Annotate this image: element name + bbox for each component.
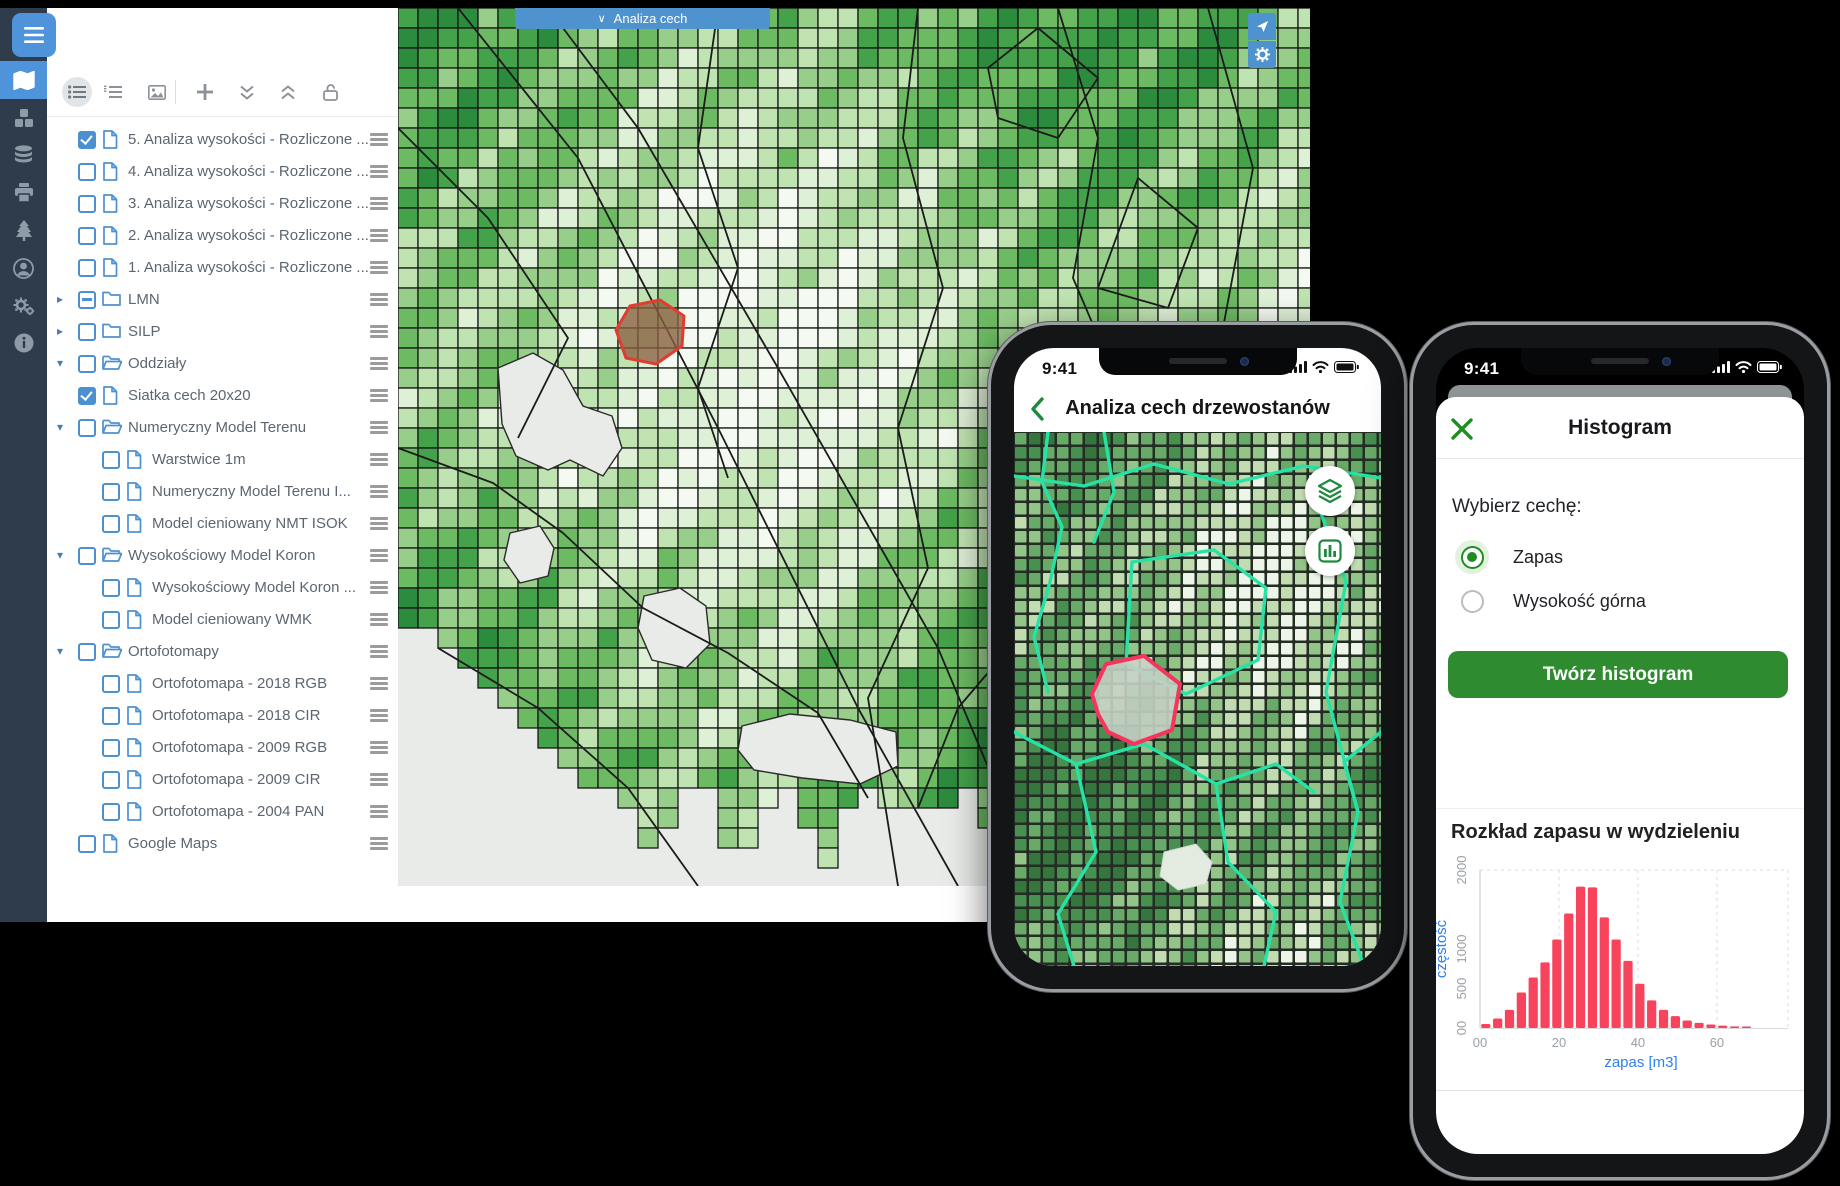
camera-dot [1240, 357, 1249, 366]
layer-row[interactable]: 4. Analiza wysokości - Rozliczone ... [47, 156, 398, 188]
chart-icon [1318, 539, 1342, 563]
layer-checkbox[interactable] [78, 163, 96, 181]
layer-label[interactable]: Numeryczny Model Terenu I... [152, 483, 351, 500]
forest-icon[interactable] [0, 211, 47, 249]
layer-label[interactable]: 5. Analiza wysokości - Rozliczone ... [128, 131, 369, 148]
folder-closed-icon [102, 322, 121, 343]
collapse-arrow-icon[interactable]: ▾ [53, 548, 67, 562]
layer-label[interactable]: 1. Analiza wysokości - Rozliczone ... [128, 259, 369, 276]
layer-label[interactable]: Warstwice 1m [152, 451, 246, 468]
file-icon [126, 802, 142, 826]
layer-row[interactable]: Warstwice 1m [47, 444, 398, 476]
layer-row[interactable]: Numeryczny Model Terenu I... [47, 476, 398, 508]
layer-checkbox[interactable] [78, 547, 96, 565]
svg-text:20: 20 [1552, 1035, 1566, 1050]
file-icon [126, 674, 142, 698]
info-icon[interactable] [0, 324, 47, 362]
divider [1436, 458, 1804, 459]
database-icon[interactable] [0, 136, 47, 174]
layer-options-icon[interactable] [370, 133, 388, 147]
layer-checkbox[interactable] [102, 611, 120, 629]
chevron-down-icon: ∨ [598, 12, 606, 25]
map-feature-dropdown[interactable]: ∨ Analiza cech [515, 8, 770, 29]
layer-options-icon[interactable] [370, 581, 388, 595]
folder-open-icon [102, 642, 122, 663]
divider [1436, 1090, 1804, 1091]
file-icon [102, 130, 118, 154]
locate-icon [1255, 19, 1270, 34]
app-sidebar [0, 8, 47, 922]
layer-checkbox[interactable] [78, 355, 96, 373]
layer-row[interactable]: 2. Analiza wysokości - Rozliczone ... [47, 220, 398, 252]
map-dropdown-label: Analiza cech [614, 11, 688, 26]
layer-label[interactable]: Google Maps [128, 835, 217, 852]
layer-label[interactable]: Ortofotomapy [128, 643, 219, 660]
layer-row[interactable]: Ortofotomapa - 2009 RGB [47, 732, 398, 764]
file-icon [126, 578, 142, 602]
file-icon [126, 482, 142, 506]
settings-icon[interactable] [0, 287, 47, 325]
layer-row[interactable]: Model cieniowany NMT ISOK [47, 508, 398, 540]
histogram-button[interactable] [1305, 526, 1355, 576]
layer-label[interactable]: SILP [128, 323, 161, 340]
layer-options-icon[interactable] [370, 261, 388, 275]
add-layer-icon[interactable] [190, 77, 220, 107]
layer-checkbox[interactable] [102, 579, 120, 597]
layer-tree: 5. Analiza wysokości - Rozliczone ...4. … [47, 124, 398, 860]
layer-label[interactable]: Ortofotomapa - 2018 RGB [152, 675, 327, 692]
layer-row[interactable]: Ortofotomapa - 2018 RGB [47, 668, 398, 700]
layer-options-icon[interactable] [370, 293, 388, 307]
expand-all-icon[interactable] [273, 77, 303, 107]
map-icon[interactable] [0, 61, 47, 99]
layer-checkbox[interactable] [102, 707, 120, 725]
speaker-slot [1591, 358, 1649, 364]
layer-options-icon[interactable] [370, 357, 388, 371]
expand-arrow-icon[interactable]: ▸ [53, 292, 67, 306]
file-icon [102, 226, 118, 250]
wifi-icon [1735, 361, 1752, 373]
layer-options-icon[interactable] [370, 165, 388, 179]
radio-icon[interactable] [1461, 546, 1484, 569]
folder-open-icon [102, 354, 122, 375]
layer-options-icon[interactable] [370, 485, 388, 499]
layer-options-icon[interactable] [370, 197, 388, 211]
gear-icon [1255, 47, 1270, 62]
layer-checkbox[interactable] [78, 419, 96, 437]
layer-row[interactable]: 3. Analiza wysokości - Rozliczone ... [47, 188, 398, 220]
file-icon [126, 738, 142, 762]
layer-row[interactable]: Model cieniowany WMK [47, 604, 398, 636]
file-icon [102, 194, 118, 218]
layer-row[interactable]: Ortofotomapa - 2018 CIR [47, 700, 398, 732]
layer-checkbox[interactable] [102, 483, 120, 501]
layer-options-icon[interactable] [370, 421, 388, 435]
layer-checkbox[interactable] [102, 739, 120, 757]
layer-checkbox[interactable] [102, 515, 120, 533]
radio-option-selected[interactable]: Zapas [1455, 540, 1563, 574]
layer-options-icon[interactable] [370, 645, 388, 659]
user-icon[interactable] [0, 249, 47, 287]
layer-label[interactable]: 2. Analiza wysokości - Rozliczone ... [128, 227, 369, 244]
layer-toolbar [47, 70, 398, 117]
layer-options-icon[interactable] [370, 613, 388, 627]
layer-options-icon[interactable] [370, 709, 388, 723]
layer-row[interactable]: ▾Ortofotomapy [47, 636, 398, 668]
file-icon [126, 514, 142, 538]
file-icon [126, 610, 142, 634]
layer-checkbox[interactable] [78, 131, 96, 149]
layer-row[interactable]: ▸SILP [47, 316, 398, 348]
phone-notch [1099, 348, 1297, 375]
histogram-sheet: Histogram Wybierz cechę: ZapasWysokość g… [1436, 397, 1804, 1154]
basemap-image-icon[interactable] [142, 77, 172, 107]
status-time: 9:41 [1464, 359, 1499, 379]
svg-text:00: 00 [1473, 1035, 1487, 1050]
layer-label[interactable]: Oddziały [128, 355, 186, 372]
layer-checkbox[interactable] [78, 259, 96, 277]
layer-list-icon[interactable] [62, 77, 92, 107]
svg-text:00: 00 [1454, 1021, 1469, 1035]
phone-mockup-histogram: 9:41 Histogram Wybierz cechę: ZapasWysok… [1410, 322, 1830, 1180]
unlock-icon[interactable] [315, 77, 345, 107]
layer-checkbox[interactable] [102, 771, 120, 789]
svg-text:1000: 1000 [1454, 935, 1469, 964]
layer-label[interactable]: Wysokościowy Model Koron ... [152, 579, 356, 596]
map-settings-button[interactable] [1248, 41, 1276, 68]
battery-icon [1334, 361, 1359, 373]
layer-options-icon[interactable] [370, 517, 388, 531]
histogram-chart: 005001000200000204060częstośćzapas [m3] [1436, 845, 1804, 1075]
sheet-title: Histogram [1436, 416, 1804, 440]
layer-row[interactable]: ▾Numeryczny Model Terenu [47, 412, 398, 444]
svg-text:500: 500 [1454, 978, 1469, 1000]
phone1-header: Analiza cech drzewostanów [1014, 386, 1381, 432]
file-icon [102, 834, 118, 858]
layer-label[interactable]: LMN [128, 291, 160, 308]
layer-checkbox[interactable] [102, 803, 120, 821]
layer-checkbox[interactable] [78, 195, 96, 213]
create-histogram-button[interactable]: Twórz histogram [1448, 651, 1788, 698]
svg-text:40: 40 [1631, 1035, 1645, 1050]
layer-row[interactable]: Ortofotomapa - 2009 CIR [47, 764, 398, 796]
collapse-arrow-icon[interactable]: ▾ [53, 356, 67, 370]
phone2-screen: 9:41 Histogram Wybierz cechę: ZapasWysok… [1436, 348, 1804, 1154]
locate-button[interactable] [1248, 13, 1276, 40]
layer-row[interactable]: 5. Analiza wysokości - Rozliczone ... [47, 124, 398, 156]
layer-checkbox[interactable] [78, 835, 96, 853]
layer-row[interactable]: Ortofotomapa - 2004 PAN [47, 796, 398, 828]
layer-checkbox[interactable] [78, 227, 96, 245]
layer-options-icon[interactable] [370, 773, 388, 787]
layer-label[interactable]: Wysokościowy Model Koron [128, 547, 315, 564]
status-icons [1289, 361, 1359, 373]
radio-halo [1455, 584, 1489, 618]
file-icon [126, 450, 142, 474]
radio-label[interactable]: Zapas [1513, 547, 1563, 568]
layer-label[interactable]: Siatka cech 20x20 [128, 387, 251, 404]
layer-label[interactable]: Model cieniowany NMT ISOK [152, 515, 348, 532]
status-time: 9:41 [1042, 359, 1077, 379]
layer-checkbox[interactable] [78, 387, 96, 405]
layer-label[interactable]: Model cieniowany WMK [152, 611, 312, 628]
folder-open-icon [102, 546, 122, 567]
layer-checkbox[interactable] [102, 451, 120, 469]
folder-closed-icon [102, 290, 121, 311]
ordered-list-icon[interactable] [98, 77, 128, 107]
collapse-arrow-icon[interactable]: ▾ [53, 420, 67, 434]
layer-checkbox[interactable] [78, 643, 96, 661]
folder-open-icon [102, 418, 122, 439]
layer-options-icon[interactable] [370, 549, 388, 563]
layer-label[interactable]: Ortofotomapa - 2004 PAN [152, 803, 324, 820]
collapse-arrow-icon[interactable]: ▾ [53, 644, 67, 658]
layer-options-icon[interactable] [370, 677, 388, 691]
layer-options-icon[interactable] [370, 325, 388, 339]
radio-icon[interactable] [1461, 590, 1484, 613]
phone1-title: Analiza cech drzewostanów [1014, 397, 1381, 420]
layer-row[interactable]: ▾Wysokościowy Model Koron [47, 540, 398, 572]
phone-mockup-map: 9:41 Analiza cech drzewostanów [988, 322, 1407, 992]
layer-options-icon[interactable] [370, 389, 388, 403]
hamburger-icon [24, 27, 44, 43]
status-icons [1712, 361, 1782, 373]
svg-text:2000: 2000 [1454, 856, 1469, 885]
layer-label[interactable]: 4. Analiza wysokości - Rozliczone ... [128, 163, 369, 180]
speaker-slot [1169, 358, 1227, 364]
radio-option-unselected[interactable]: Wysokość górna [1455, 584, 1646, 618]
layer-options-icon[interactable] [370, 805, 388, 819]
layer-options-icon[interactable] [370, 741, 388, 755]
choose-feature-label: Wybierz cechę: [1452, 496, 1582, 518]
layer-options-icon[interactable] [370, 453, 388, 467]
layer-label[interactable]: Ortofotomapa - 2009 RGB [152, 739, 327, 756]
file-icon [102, 258, 118, 282]
modules-icon[interactable] [0, 99, 47, 137]
main-menu-button[interactable] [12, 13, 56, 57]
layer-checkbox[interactable] [78, 291, 96, 309]
y-axis-label: częstość [1436, 919, 1450, 978]
phone-notch [1521, 348, 1719, 375]
file-icon [126, 770, 142, 794]
camera-dot [1662, 357, 1671, 366]
layer-row[interactable]: Siatka cech 20x20 [47, 380, 398, 412]
chart-title: Rozkład zapasu w wydzieleniu [1451, 821, 1740, 844]
canvas: { "desktop": { "sidebar": { "menu_icon":… [0, 0, 1840, 1186]
radio-halo [1455, 540, 1489, 574]
phone1-screen: 9:41 Analiza cech drzewostanów [1014, 348, 1381, 966]
layer-label[interactable]: Ortofotomapa - 2009 CIR [152, 771, 320, 788]
divider [1436, 808, 1804, 809]
layer-panel: 5. Analiza wysokości - Rozliczone ...4. … [47, 8, 398, 922]
layer-checkbox[interactable] [78, 323, 96, 341]
file-icon [126, 706, 142, 730]
x-axis-label: zapas [m3] [1604, 1054, 1677, 1071]
layer-options-icon[interactable] [370, 837, 388, 851]
toolbar-divider [175, 80, 176, 104]
layer-row[interactable]: ▾Oddziały [47, 348, 398, 380]
expand-arrow-icon[interactable]: ▸ [53, 324, 67, 338]
file-icon [102, 386, 118, 410]
layer-options-icon[interactable] [370, 229, 388, 243]
layer-row[interactable]: Wysokościowy Model Koron ... [47, 572, 398, 604]
radio-label[interactable]: Wysokość górna [1513, 591, 1646, 612]
printer-icon[interactable] [0, 174, 47, 212]
layer-label[interactable]: Ortofotomapa - 2018 CIR [152, 707, 320, 724]
svg-text:60: 60 [1710, 1035, 1724, 1050]
layer-row[interactable]: Google Maps [47, 828, 398, 860]
layer-row[interactable]: ▸LMN [47, 284, 398, 316]
battery-icon [1757, 361, 1782, 373]
layers-button[interactable] [1305, 466, 1355, 516]
layer-label[interactable]: Numeryczny Model Terenu [128, 419, 306, 436]
layer-row[interactable]: 1. Analiza wysokości - Rozliczone ... [47, 252, 398, 284]
collapse-all-icon[interactable] [232, 77, 262, 107]
layers-icon [1317, 478, 1343, 504]
layer-label[interactable]: 3. Analiza wysokości - Rozliczone ... [128, 195, 369, 212]
file-icon [102, 162, 118, 186]
wifi-icon [1312, 361, 1329, 373]
layer-checkbox[interactable] [102, 675, 120, 693]
